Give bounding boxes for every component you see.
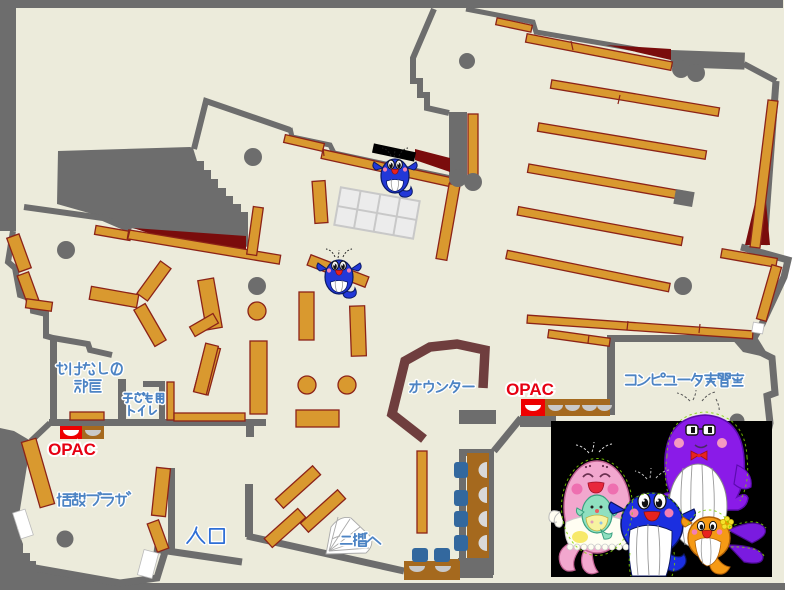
svg-text:OPAC: OPAC bbox=[506, 380, 554, 399]
svg-text:OPAC: OPAC bbox=[48, 440, 96, 459]
